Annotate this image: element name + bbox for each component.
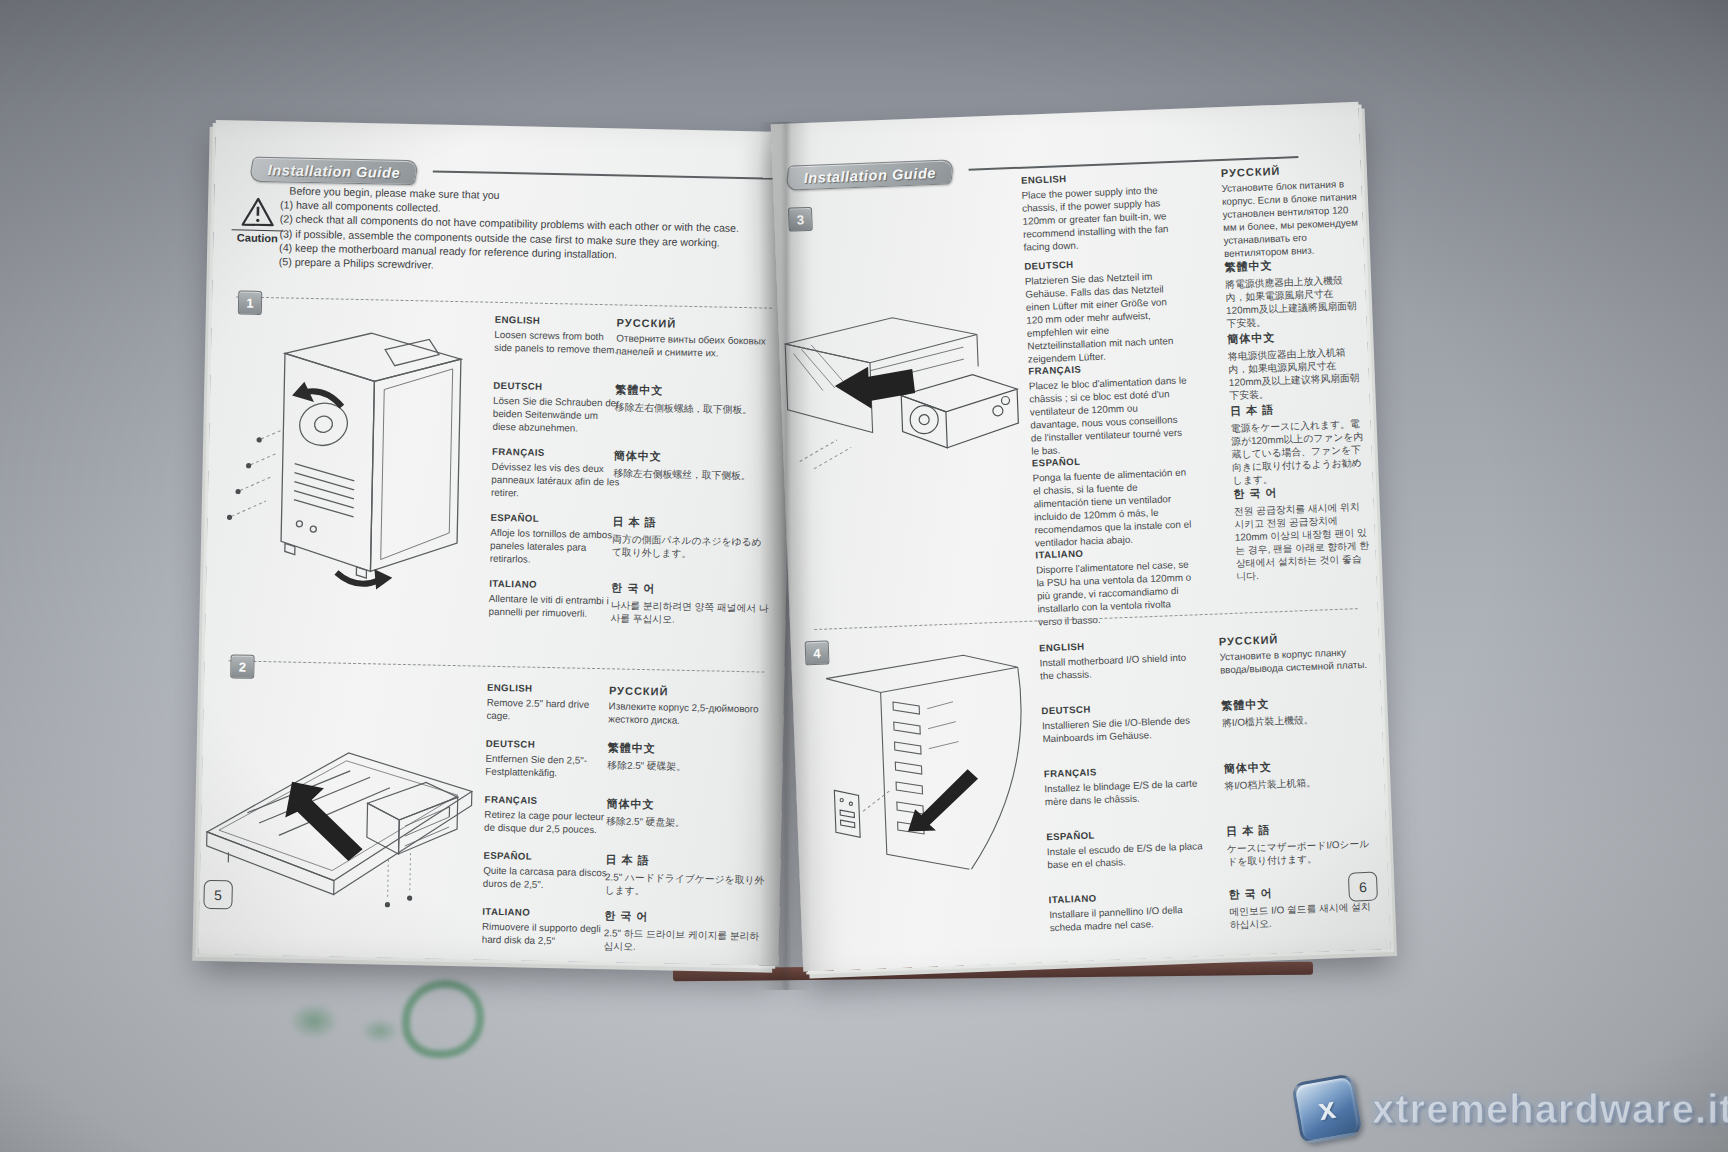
language-label: 繁體中文 [608, 740, 768, 758]
language-block: ESPAÑOLQuite la carcasa para discos duro… [482, 850, 611, 909]
language-block: ENGLISHRemove 2.5" hard drive cage. [486, 682, 615, 741]
language-block: 簡体中文将I/O档片装上机箱。 [1224, 756, 1376, 825]
step-1-column-east: РУССКИЙОтверните винты обеих боковых пан… [610, 316, 775, 649]
watermark-text: xtremehardware.it [1372, 1087, 1728, 1132]
instruction-text: Installez le blindage E/S de la carte mè… [1044, 776, 1203, 808]
language-block: РУССКИЙУстановите в корпус планку ввода/… [1219, 630, 1371, 699]
step-2-column-west: ENGLISHRemove 2.5" hard drive cage.DEUTS… [481, 682, 615, 965]
language-label: РУССКИЙ [1221, 162, 1356, 179]
language-block: ENGLISHPlace the power supply into the c… [1021, 169, 1182, 261]
instruction-text: Retirez la cage pour lecteur de disque d… [484, 808, 613, 837]
language-block: 한 국 어2.5" 하드 드라이브 케이지를 분리하십시오. [603, 908, 764, 967]
language-label: ITALIANO [482, 906, 610, 920]
instruction-text: 移除2.5" 硬盘架。 [606, 814, 766, 830]
instruction-text: Installieren Sie die I/O-Blende des Main… [1042, 713, 1201, 745]
instruction-text: 將I/O檔片裝上機殼。 [1222, 711, 1372, 730]
language-block: ITALIANOInstallare il pannellino I/O del… [1048, 888, 1208, 957]
section-banner: Installation Guide [249, 157, 420, 185]
language-block: DEUTSCHInstallieren Sie die I/O-Blende d… [1041, 699, 1201, 768]
instruction-text: 移除左右側板螺絲，取下側板。 [615, 400, 773, 416]
language-label: ENGLISH [487, 682, 615, 696]
language-block: 日 本 語両方の側面パネルのネジをゆるめて取り外します。 [611, 514, 770, 583]
language-label: РУССКИЙ [609, 684, 769, 699]
language-block: 簡体中文移除左右侧板螺丝，取下侧板。 [613, 448, 772, 517]
language-block: 繁體中文移除2.5" 硬碟架。 [607, 740, 768, 799]
watermark: x xtremehardware.it [1296, 1078, 1728, 1140]
instruction-text: Quite la carcasa para discos duros de 2,… [483, 864, 612, 893]
language-label: 繁體中文 [615, 382, 773, 400]
instruction-text: 2.5" ハードドライブケージを取り外します。 [605, 870, 766, 899]
step-4-io-shield-illustration [813, 635, 1037, 878]
page-right: Installation Guide 3 [771, 102, 1391, 972]
language-label: ESPAÑOL [483, 850, 611, 864]
language-block: 簡体中文移除2.5" 硬盘架。 [606, 796, 767, 855]
instruction-text: 移除2.5" 硬碟架。 [607, 758, 767, 774]
language-label: 簡体中文 [606, 796, 766, 814]
language-label: FRANÇAIS [485, 794, 613, 808]
page-left: Installation Guide Caution Before you be… [198, 120, 795, 966]
page-number-left: 5 [203, 880, 233, 910]
step-3-column-west: ENGLISHPlace the power supply into the c… [1021, 169, 1197, 636]
caution-block: Caution [231, 196, 284, 244]
language-block: FRANÇAISDévissez les vis des deux pannea… [491, 446, 620, 515]
instruction-text: Rimuovere il supporto degli hard disk da… [482, 920, 611, 949]
dashed-divider [236, 296, 772, 308]
xtremehardware-logo-icon: x [1291, 1073, 1363, 1145]
language-block: 繁體中文移除左右側板螺絲，取下側板。 [614, 382, 773, 451]
language-label: ESPAÑOL [490, 512, 618, 526]
language-block: РУССКИЙИзвлеките корпус 2,5-дюймового же… [608, 684, 769, 743]
language-label: ENGLISH [495, 314, 623, 328]
instruction-text: 将I/O档片装上机箱。 [1224, 774, 1374, 793]
instruction-text: Извлеките корпус 2,5-дюймового жесткого … [608, 699, 769, 728]
warning-triangle-icon [241, 196, 276, 227]
instruction-text: Afloje los tornillos de ambos paneles la… [490, 526, 619, 568]
instruction-text: 전원 공급장치를 새시에 위치시키고 전원 공급장치에 120mm 이상의 내장… [1234, 500, 1372, 583]
intro-checklist: Before you begin, please make sure that … [279, 183, 786, 279]
instruction-text: 移除左右侧板螺丝，取下侧板。 [613, 466, 771, 482]
language-label: DEUTSCH [486, 738, 614, 752]
language-block: ENGLISHInstall motherboard I/O shield in… [1039, 636, 1199, 705]
language-label: 簡体中文 [614, 448, 772, 466]
language-block: 繁體中文將電源供應器由上放入機殼內，如果電源風扇尺寸在120mm及以上建議將風扇… [1224, 255, 1362, 332]
instruction-text: Lösen Sie die Schrauben der beiden Seite… [492, 394, 621, 436]
language-block: ITALIANODisporre l'alimentatore nel case… [1035, 543, 1196, 635]
instruction-text: Отверните винты обеих боковых панелей и … [616, 331, 775, 360]
dashed-divider [229, 660, 765, 672]
language-block: DEUTSCHPlatzieren Sie das Netzteil im Ge… [1024, 255, 1186, 366]
instruction-text: 電源をケースに入れます。電源が120mm以上のファンを内蔵している場合、ファンを… [1230, 417, 1367, 487]
instruction-text: 메인보드 I/O 쉴드를 새시에 설치하십시오. [1229, 900, 1380, 932]
instruction-text: Установите в корпус планку ввода/вывода … [1219, 645, 1370, 677]
section-banner: Installation Guide [785, 159, 954, 191]
instruction-text: Place the power supply into the chassis,… [1021, 183, 1181, 254]
language-block: FRANÇAISPlacez le bloc d'alimentation da… [1028, 360, 1189, 458]
instruction-text: Loosen screws from both side panels to r… [494, 328, 623, 357]
language-block: ESPAÑOLAfloje los tornillos de ambos pan… [489, 512, 618, 581]
language-block: DEUTSCHEntfernen Sie den 2,5"-Festplatte… [485, 738, 614, 797]
language-block: 日 本 語電源をケースに入れます。電源が120mm以上のファンを内蔵している場合… [1230, 399, 1368, 487]
language-block: 簡体中文将电源供应器由上放入机箱内，如果电源风扇尺寸在120mm及以上建议将风扇… [1227, 327, 1365, 404]
green-smudge [402, 980, 484, 1058]
green-smudge [360, 1018, 400, 1044]
language-block: ITALIANOAllentare le viti di entrambi i … [488, 578, 617, 647]
instruction-text: Remove 2.5" hard drive cage. [486, 696, 615, 725]
caution-label: Caution [231, 229, 283, 244]
language-block: РУССКИЙОтверните винты обеих боковых пан… [615, 316, 774, 385]
step-2-chassis-illustration [197, 680, 482, 941]
language-block: FRANÇAISRetirez la cage pour lecteur de … [484, 794, 613, 853]
language-block: РУССКИЙУстановите блок питания в корпус.… [1221, 162, 1359, 260]
language-block: 日 本 語2.5" ハードドライブケージを取り外します。 [604, 852, 765, 911]
language-block: FRANÇAISInstallez le blindage E/S de la … [1044, 762, 1204, 831]
step-4-column-east: РУССКИЙУстановите в корпус планку ввода/… [1219, 630, 1381, 951]
step-1-column-west: ENGLISHLoosen screws from both side pane… [488, 314, 623, 647]
step-1-case-illustration [218, 306, 489, 611]
instruction-text: 両方の側面パネルのネジをゆるめて取り外します。 [612, 532, 771, 561]
instruction-text: Установите блок питания в корпус. Если в… [1221, 177, 1359, 260]
section-title: Installation Guide [803, 165, 936, 186]
instruction-text: Instale el escudo de E/S de la placa bas… [1047, 839, 1206, 871]
instruction-text: Installare il pannellino I/O della sched… [1049, 902, 1208, 934]
step-3-badge: 3 [788, 207, 813, 232]
language-block: ITALIANORimuovere il supporto degli hard… [481, 906, 610, 965]
instruction-text: 2.5" 하드 드라이브 케이지를 분리하십시오. [604, 926, 765, 955]
language-label: 한 국 어 [611, 580, 769, 598]
instruction-text: Platzieren Sie das Netzteil im Gehäuse. … [1025, 269, 1186, 366]
logo-letter: x [1316, 1091, 1338, 1127]
language-label: РУССКИЙ [617, 316, 775, 331]
step-3-column-east: РУССКИЙУстановите блок питания в корпус.… [1221, 162, 1372, 583]
language-block: ESPAÑOLPonga la fuente de alimentación e… [1032, 451, 1193, 549]
step-2-badge: 2 [230, 654, 254, 678]
instruction-text: Install motherboard I/O shield into the … [1039, 650, 1198, 682]
language-label: DEUTSCH [493, 380, 621, 394]
instruction-text: ケースにマザーボードI/Oシールドを取り付けます。 [1227, 837, 1378, 869]
step-3-psu-illustration [780, 302, 1041, 482]
instruction-text: 将电源供应器由上放入机箱内，如果电源风扇尺寸在120mm及以上建议将风扇面朝下安… [1228, 345, 1365, 402]
language-block: ESPAÑOLInstale el escudo de E/S de la pl… [1046, 825, 1206, 894]
language-block: 繁體中文將I/O檔片裝上機殼。 [1221, 693, 1373, 762]
installation-guide-booklet: Installation Guide Caution Before you be… [203, 122, 1383, 990]
green-smudge [288, 1002, 340, 1040]
instruction-text: Entfernen Sie den 2,5"-Festplattenkäfig. [485, 752, 614, 781]
language-label: 한 국 어 [604, 908, 764, 926]
language-block: DEUTSCHLösen Sie die Schrauben der beide… [492, 380, 621, 449]
instruction-text: 나사를 분리하려면 양쪽 패널에서 나사를 푸십시오. [610, 598, 769, 627]
section-title: Installation Guide [268, 162, 401, 181]
instruction-text: Ponga la fuente de alimentación en el ch… [1032, 465, 1193, 549]
instruction-text: Placez le bloc d'alimentation dans le ch… [1029, 374, 1190, 458]
page-number-right: 6 [1348, 872, 1378, 902]
language-block: 한 국 어나사를 분리하려면 양쪽 패널에서 나사를 푸십시오. [610, 580, 769, 649]
language-label: ITALIANO [489, 578, 617, 592]
language-block: ENGLISHLoosen screws from both side pane… [493, 314, 622, 383]
instruction-text: 將電源供應器由上放入機殼內，如果電源風扇尺寸在120mm及以上建議將風扇面朝下安… [1225, 273, 1362, 330]
instruction-text: Dévissez les vis des deux panneaux latér… [491, 460, 620, 502]
language-label: FRANÇAIS [492, 446, 620, 460]
banner-rule [433, 171, 773, 180]
language-label: 日 本 語 [612, 514, 770, 532]
step-4-column-west: ENGLISHInstall motherboard I/O shield in… [1039, 636, 1209, 957]
instruction-text: Allentare le viti di entrambi i pannelli… [488, 592, 617, 621]
language-label: 日 本 語 [605, 852, 765, 870]
step-2-column-east: РУССКИЙИзвлеките корпус 2,5-дюймового же… [603, 684, 769, 967]
language-block: 한 국 어전원 공급장치를 새시에 위치시키고 전원 공급장치에 120mm 이… [1233, 482, 1372, 583]
